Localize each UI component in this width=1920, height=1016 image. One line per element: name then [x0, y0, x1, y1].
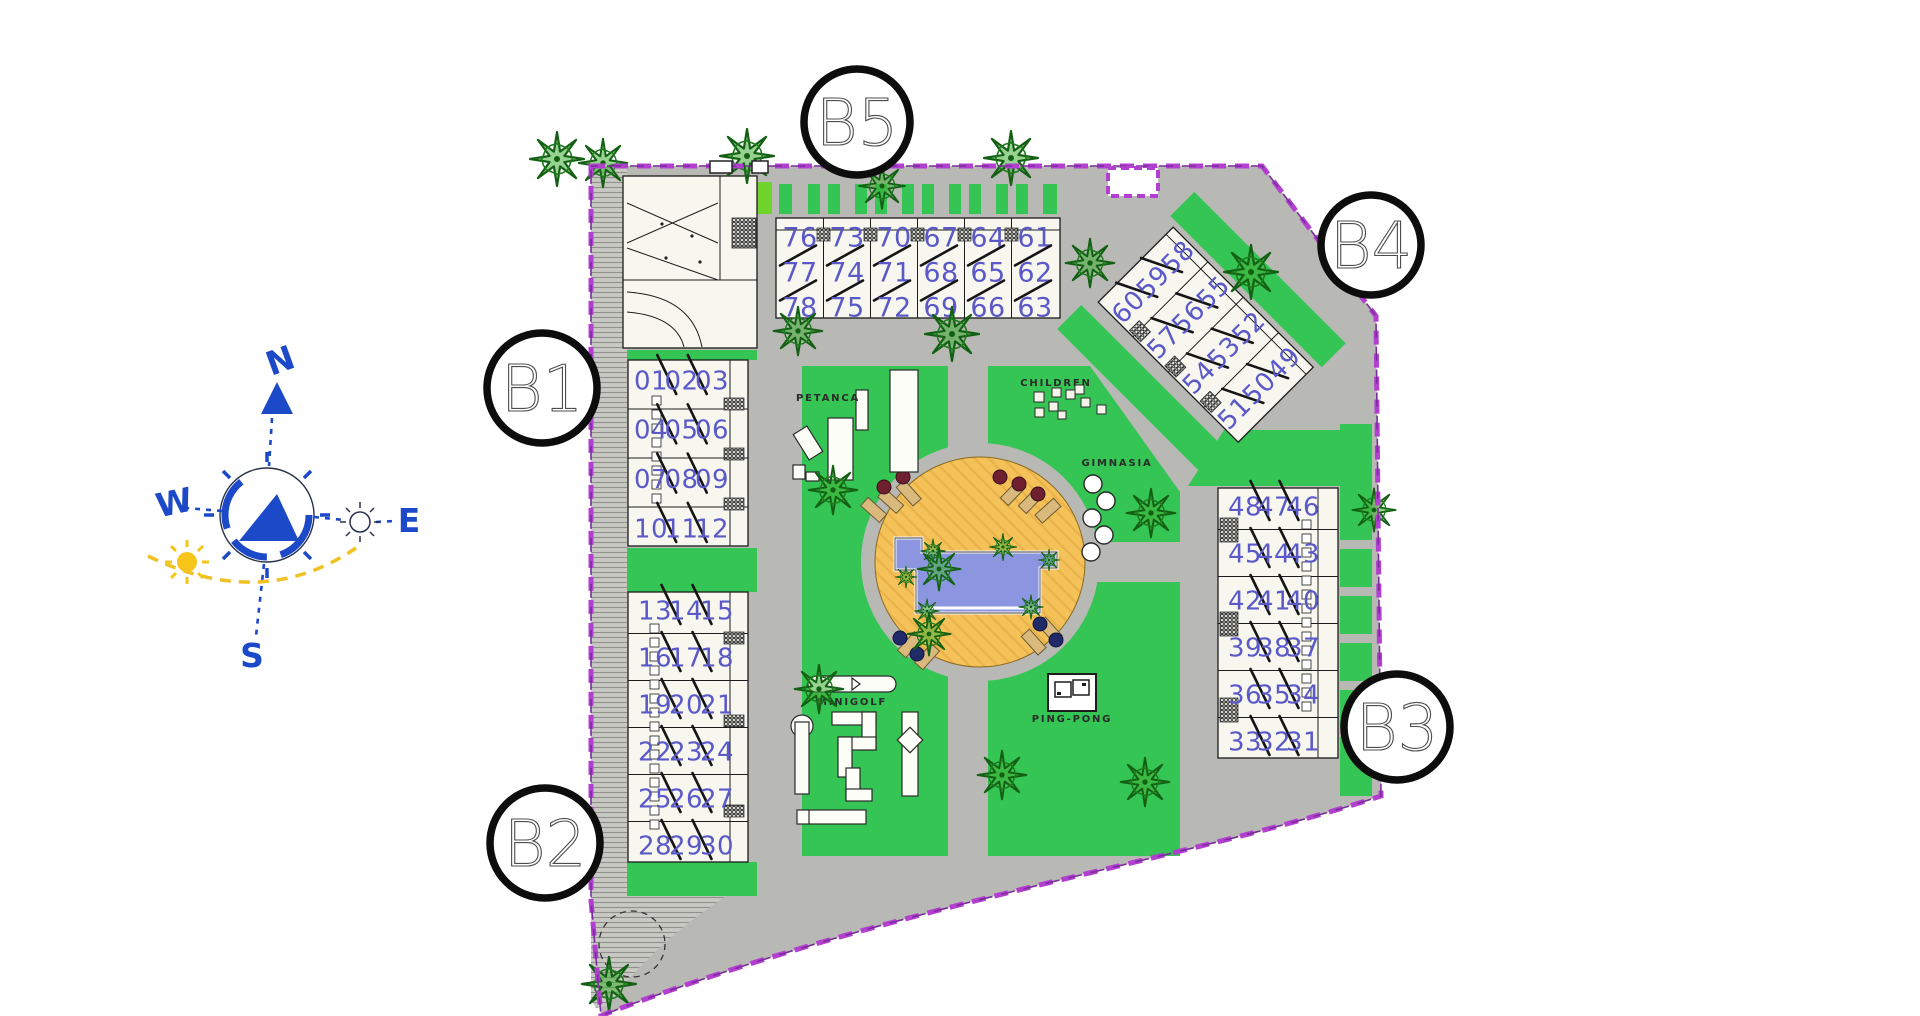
unit-number: 40: [1286, 586, 1320, 616]
unit-number: 77: [782, 258, 817, 289]
unit-number: 66: [970, 293, 1005, 324]
unit-number: 29: [669, 831, 703, 861]
lawn-above-b1: [627, 350, 757, 360]
unit-number: 16: [638, 643, 672, 673]
unit-number: 09: [695, 465, 729, 495]
unit-number: 71: [876, 258, 911, 289]
park-road-right: [1088, 542, 1218, 582]
compass-east-label: E: [398, 501, 421, 540]
badge-b5-label: B5: [816, 87, 899, 161]
unit-number: 05: [664, 416, 698, 446]
unit-number: 15: [700, 596, 734, 626]
unit-number: 18: [700, 643, 734, 673]
compass-west-label: W: [152, 480, 196, 526]
pingpong-label: PING-PONG: [1032, 714, 1112, 725]
unit-number: 25: [638, 784, 672, 814]
unit-number: 02: [664, 366, 698, 396]
unit-number: 13: [638, 596, 672, 626]
unit-number: 37: [1286, 633, 1320, 663]
badge-b3: B3: [1344, 674, 1450, 780]
unit-number: 64: [970, 223, 1005, 254]
unit-number: 01: [634, 366, 668, 396]
unit-number: 12: [695, 514, 729, 544]
unit-number: 34: [1286, 680, 1320, 710]
utility-structure: [623, 176, 757, 348]
unit-number: 67: [923, 223, 958, 254]
badge-b2: B2: [490, 788, 600, 898]
unit-number: 63: [1017, 293, 1052, 324]
gimnasia-label: GIMNASIA: [1081, 458, 1152, 469]
unit-number: 17: [669, 643, 703, 673]
site-plan-page: 767778737475707172676869646566616263 010…: [0, 0, 1920, 1016]
unit-number: 10: [634, 514, 668, 544]
unit-number: 30: [700, 831, 734, 861]
unit-number: 07: [634, 465, 668, 495]
unit-number: 70: [876, 223, 911, 254]
badge-b2-label: B2: [504, 808, 587, 882]
unit-number: 74: [829, 258, 864, 289]
compass-north-label: N: [261, 337, 300, 383]
unit-number: 75: [829, 293, 864, 324]
unit-number: 43: [1286, 539, 1320, 569]
unit-number: 61: [1017, 223, 1052, 254]
unit-number: 72: [876, 293, 911, 324]
unit-number: 73: [829, 223, 864, 254]
unit-number: 62: [1017, 258, 1052, 289]
gate-marker-2: [752, 161, 768, 173]
block-b3-building: [1218, 488, 1338, 758]
unit-number: 14: [669, 596, 703, 626]
unit-number: 08: [664, 465, 698, 495]
park-road-top: [948, 366, 988, 456]
lawn-below-b2: [627, 862, 757, 896]
perimeter-road-hatched: [591, 166, 627, 862]
badge-b4-label: B4: [1330, 210, 1413, 284]
unit-number: 22: [638, 737, 672, 767]
sun-icon-filled: [165, 540, 209, 584]
unit-number: 19: [638, 690, 672, 720]
unit-number: 68: [923, 258, 958, 289]
unit-number: 23: [669, 737, 703, 767]
unit-number: 21: [700, 690, 734, 720]
compass-south-label: S: [240, 636, 264, 675]
badge-b1: B1: [487, 333, 597, 443]
compass-rose: N W E S: [148, 337, 420, 675]
unit-number: 76: [782, 223, 817, 254]
unit-number: 20: [669, 690, 703, 720]
park-road-bottom: [948, 670, 988, 856]
unit-number: 24: [700, 737, 734, 767]
sun-icon-outline: [340, 502, 380, 542]
unit-number: 28: [638, 831, 672, 861]
unit-number: 04: [634, 416, 668, 446]
petanca-label: PETANCA: [796, 393, 860, 404]
unit-number: 65: [970, 258, 1005, 289]
boundary-dashed-rect: [1108, 168, 1158, 196]
unit-number: 06: [695, 416, 729, 446]
pool-area: [861, 450, 1092, 674]
unit-number: 31: [1286, 727, 1320, 757]
unit-number: 26: [669, 784, 703, 814]
gate-marker-1: [710, 161, 732, 173]
badge-b1-label: B1: [501, 353, 584, 427]
unit-number: 46: [1286, 492, 1320, 522]
north-arrow: [261, 382, 293, 414]
block-b2-building: [628, 592, 748, 862]
badge-b3-label: B3: [1356, 692, 1439, 766]
unit-number: 27: [700, 784, 734, 814]
badge-b5: B5: [804, 69, 910, 175]
badge-b4: B4: [1321, 195, 1421, 295]
unit-number: 11: [664, 514, 698, 544]
unit-number: 03: [695, 366, 729, 396]
site-plan-svg: 767778737475707172676869646566616263 010…: [0, 0, 1920, 1016]
